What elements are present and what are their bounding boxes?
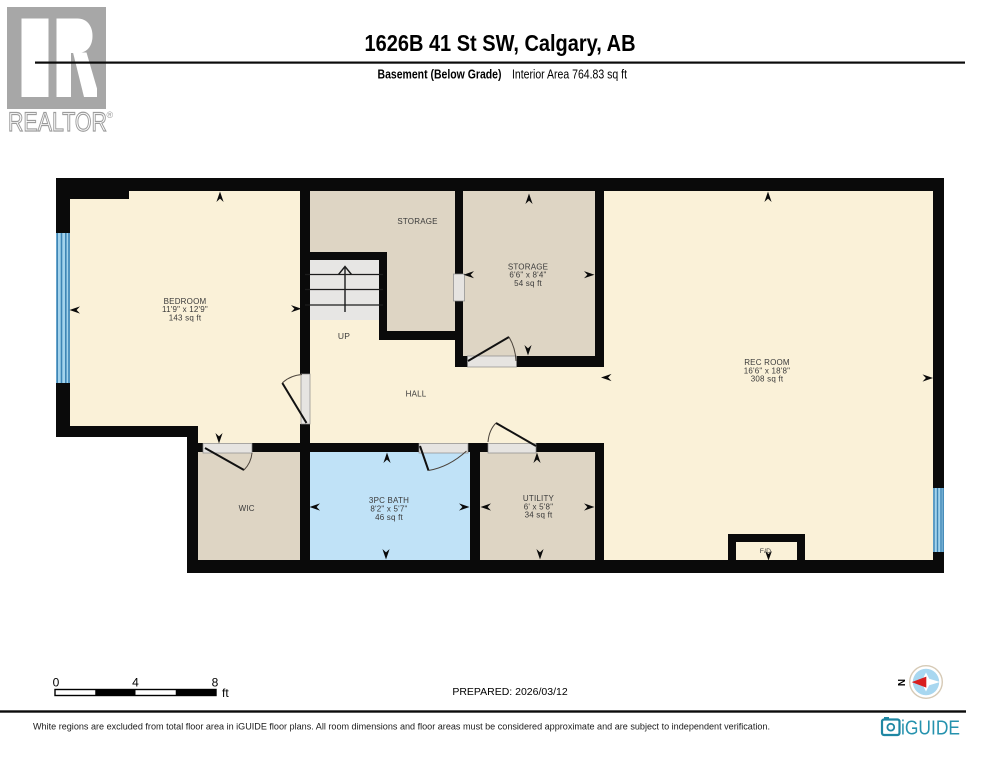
svg-text:0: 0 (53, 676, 60, 690)
svg-text:308 sq ft: 308 sq ft (751, 375, 784, 384)
svg-text:REALTOR: REALTOR (8, 107, 107, 137)
svg-text:White regions are excluded fro: White regions are excluded from total fl… (33, 721, 770, 732)
svg-text:®: ® (107, 110, 114, 120)
svg-text:PREPARED: 2026/03/12: PREPARED: 2026/03/12 (452, 686, 568, 698)
svg-text:143 sq ft: 143 sq ft (169, 313, 202, 322)
svg-text:4: 4 (132, 676, 139, 690)
svg-text:34 sq ft: 34 sq ft (525, 511, 553, 520)
svg-text:UP: UP (338, 331, 350, 341)
svg-text:WIC: WIC (239, 504, 255, 513)
svg-text:54 sq ft: 54 sq ft (514, 279, 542, 288)
svg-text:STORAGE: STORAGE (397, 217, 437, 226)
svg-text:HALL: HALL (406, 390, 427, 399)
svg-text:N: N (897, 679, 908, 686)
svg-text:Basement (Below Grade): Basement (Below Grade) (378, 68, 502, 82)
svg-text:Interior Area 764.83 sq ft: Interior Area 764.83 sq ft (512, 68, 627, 82)
svg-text:iGUIDE: iGUIDE (901, 717, 960, 740)
svg-text:8: 8 (212, 676, 219, 690)
svg-text:1626B 41 St SW, Calgary, AB: 1626B 41 St SW, Calgary, AB (365, 30, 636, 56)
svg-text:46 sq ft: 46 sq ft (375, 513, 403, 522)
svg-text:ft: ft (222, 686, 229, 700)
